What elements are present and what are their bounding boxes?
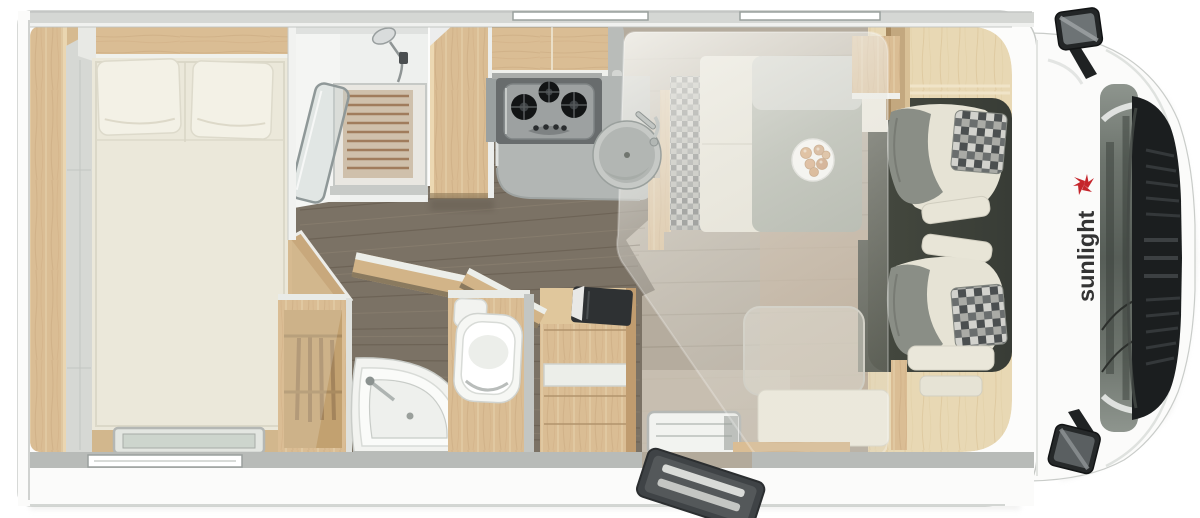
svg-text:sunlight: sunlight (1073, 210, 1099, 302)
